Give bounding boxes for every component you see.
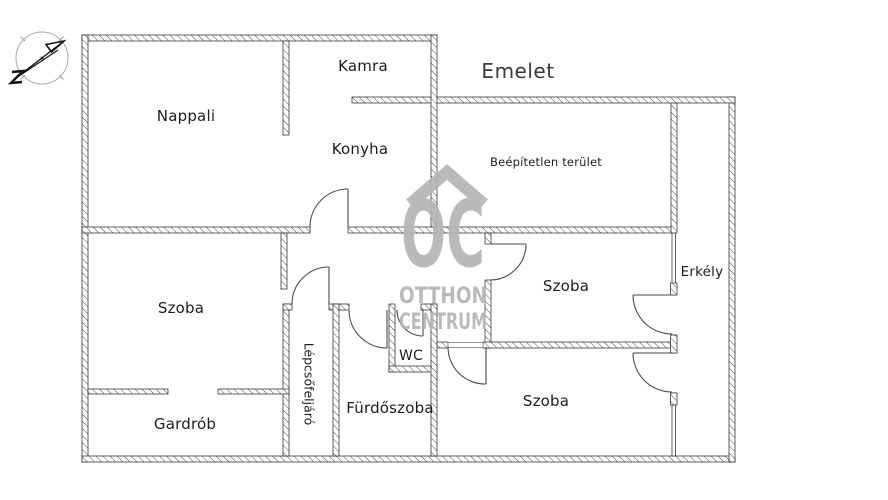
watermark-logo: OC OTTHON CENTRUM [399, 172, 487, 335]
balcony-glass-wall [671, 233, 678, 456]
door-symbol-szoba-lower [448, 347, 486, 384]
room-label-beepitetlen: Beépítetlen terület [490, 155, 602, 169]
door-symbol-furdoszoba [349, 310, 387, 348]
room-label-szoba-upper: Szoba [543, 277, 589, 295]
door-symbol-szoba-upper [490, 244, 526, 280]
door-symbol-stairs [292, 267, 329, 304]
room-label-kamra: Kamra [338, 57, 388, 75]
room-label-lepcsofeljaro: Lépcsőfeljáró [302, 343, 317, 426]
room-label-erkely: Erkély [681, 264, 724, 280]
watermark-line1: OTTHON [399, 284, 487, 309]
watermark-line2: CENTRUM [399, 310, 487, 335]
door-symbol-erkely-lower [633, 353, 672, 392]
door-symbol-erkely-upper [633, 295, 672, 334]
room-label-wc: WC [399, 348, 423, 364]
watermark-logo-text: OC [401, 181, 485, 288]
room-label-konyha: Konyha [332, 140, 389, 158]
door-symbol-konyha [310, 189, 348, 227]
room-label-nappali: Nappali [157, 107, 215, 125]
floor-plan: OC OTTHON CENTRUM Emelet Nappali Kamra K… [0, 0, 888, 500]
door-threshold [448, 343, 483, 348]
room-label-gardrob: Gardrób [154, 415, 216, 433]
room-label-szoba-left: Szoba [158, 299, 204, 317]
floor-plan-drawing: OC OTTHON CENTRUM [0, 0, 888, 500]
room-label-szoba-lower: Szoba [523, 392, 569, 410]
north-arrow-icon [11, 32, 68, 84]
floor-title: Emelet [481, 59, 554, 83]
room-label-furdoszoba: Fürdőszoba [346, 399, 434, 417]
